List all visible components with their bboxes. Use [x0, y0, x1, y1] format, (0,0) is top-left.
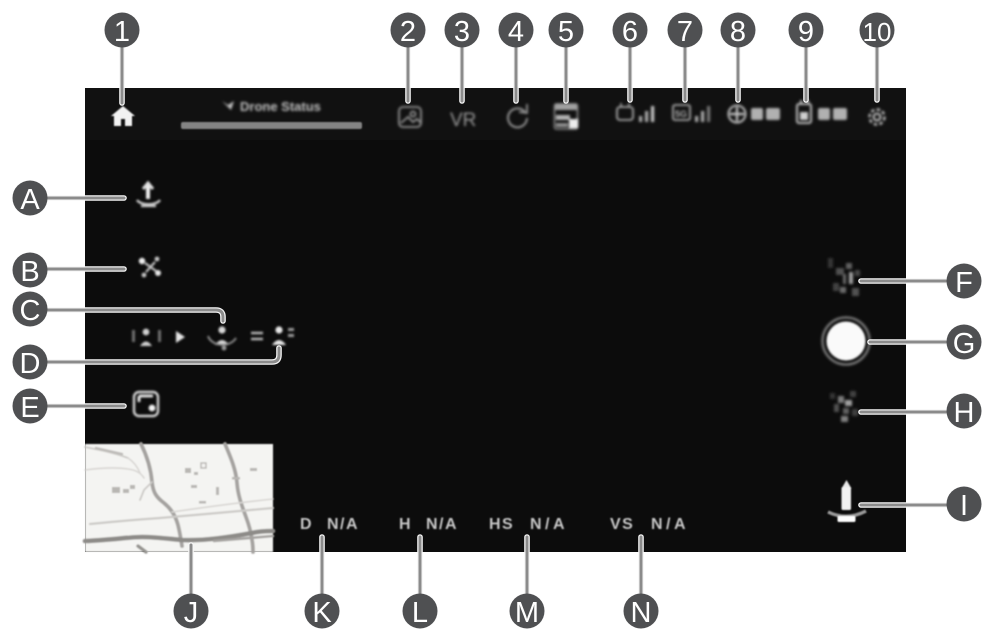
svg-text:N/A: N/A — [530, 516, 568, 533]
svg-text:G: G — [953, 328, 976, 360]
svg-text:Drone Status: Drone Status — [240, 99, 321, 114]
svg-text:N/A: N/A — [327, 516, 359, 533]
svg-text:L: L — [412, 597, 428, 629]
svg-text:N: N — [631, 597, 652, 629]
svg-text:3: 3 — [454, 16, 470, 48]
svg-text:H: H — [399, 516, 412, 533]
svg-text:I: I — [960, 490, 968, 522]
svg-text:VR: VR — [450, 110, 476, 131]
svg-text:E: E — [20, 392, 39, 424]
svg-text:B: B — [20, 256, 39, 288]
svg-text:2: 2 — [400, 16, 416, 48]
svg-text:A: A — [20, 184, 40, 216]
svg-text:J: J — [184, 597, 199, 629]
svg-text:F: F — [955, 267, 973, 299]
svg-text:4: 4 — [508, 16, 524, 48]
svg-text:6: 6 — [622, 16, 638, 48]
svg-text:5G: 5G — [675, 109, 687, 119]
svg-text:HS: HS — [489, 516, 514, 533]
svg-text:D: D — [300, 516, 313, 533]
svg-text:N/A: N/A — [426, 516, 458, 533]
svg-text:8: 8 — [730, 16, 746, 48]
svg-text:H: H — [954, 397, 975, 429]
svg-text:N/A: N/A — [651, 516, 689, 533]
svg-text:9: 9 — [798, 16, 814, 48]
svg-text:D: D — [20, 348, 41, 380]
svg-text:10: 10 — [863, 17, 892, 47]
svg-text:VS: VS — [610, 516, 634, 533]
svg-text:K: K — [312, 597, 332, 629]
svg-text:5: 5 — [558, 16, 574, 48]
svg-text:C: C — [20, 295, 41, 327]
svg-text:M: M — [515, 597, 539, 629]
svg-text:1: 1 — [114, 16, 130, 48]
svg-text:7: 7 — [677, 16, 693, 48]
